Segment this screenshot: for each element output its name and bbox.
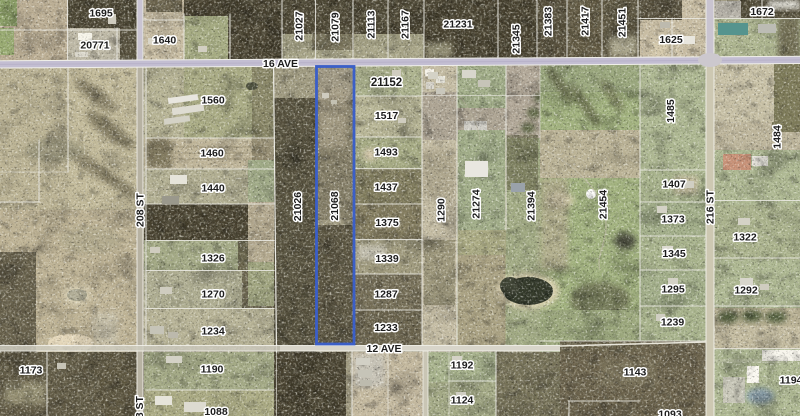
svg-text:1517: 1517 [375,110,399,122]
svg-text:216 ST: 216 ST [705,189,717,223]
svg-text:21068: 21068 [329,191,341,220]
svg-text:21394: 21394 [526,191,538,220]
svg-text:1194: 1194 [780,375,800,387]
svg-text:16 AVE: 16 AVE [263,58,298,70]
svg-text:1437: 1437 [374,182,398,194]
svg-text:1345: 1345 [662,248,686,260]
svg-text:1485: 1485 [665,99,677,123]
svg-text:1234: 1234 [201,326,225,338]
svg-text:20771: 20771 [80,40,109,52]
svg-text:1695: 1695 [89,8,113,20]
svg-text:1270: 1270 [201,289,225,301]
svg-text:21454: 21454 [598,190,610,219]
svg-text:21079: 21079 [330,12,342,41]
svg-text:21113: 21113 [366,10,378,38]
svg-text:21026: 21026 [292,192,304,221]
svg-text:1493: 1493 [374,147,398,159]
svg-text:1239: 1239 [661,317,685,329]
svg-text:1322: 1322 [733,232,757,244]
svg-text:21231: 21231 [443,19,472,31]
svg-text:12 AVE: 12 AVE [366,343,401,355]
svg-text:1625: 1625 [659,34,683,46]
svg-text:21417: 21417 [580,6,592,35]
svg-text:1373: 1373 [661,214,685,226]
svg-text:1407: 1407 [662,179,686,191]
svg-text:1190: 1190 [201,364,224,376]
svg-text:1233: 1233 [374,322,398,334]
svg-text:1093: 1093 [658,409,682,416]
svg-text:21345: 21345 [511,24,523,53]
svg-text:21274: 21274 [471,189,483,218]
svg-text:1640: 1640 [153,35,177,47]
svg-text:1295: 1295 [661,284,685,296]
svg-text:208 ST: 208 ST [135,192,147,226]
svg-text:1287: 1287 [374,289,398,301]
svg-text:1292: 1292 [734,285,758,297]
svg-text:1484: 1484 [772,125,784,149]
svg-text:21152: 21152 [371,77,402,89]
svg-text:208 ST: 208 ST [134,395,146,416]
svg-text:1560: 1560 [201,95,225,107]
svg-text:21167: 21167 [400,10,412,39]
svg-text:1192: 1192 [451,360,474,372]
svg-text:1326: 1326 [201,253,225,265]
svg-text:1173: 1173 [20,365,43,377]
svg-text:21451: 21451 [617,8,629,37]
svg-text:1440: 1440 [201,183,225,195]
svg-text:1339: 1339 [375,253,399,265]
svg-text:1088: 1088 [204,406,228,416]
svg-text:1124: 1124 [451,395,474,407]
svg-text:21027: 21027 [294,11,306,40]
svg-text:1375: 1375 [375,217,399,229]
svg-text:1143: 1143 [624,367,647,379]
svg-text:21383: 21383 [543,7,555,36]
svg-text:1672: 1672 [750,6,774,18]
svg-text:1460: 1460 [200,148,224,160]
svg-text:1290: 1290 [436,198,448,222]
